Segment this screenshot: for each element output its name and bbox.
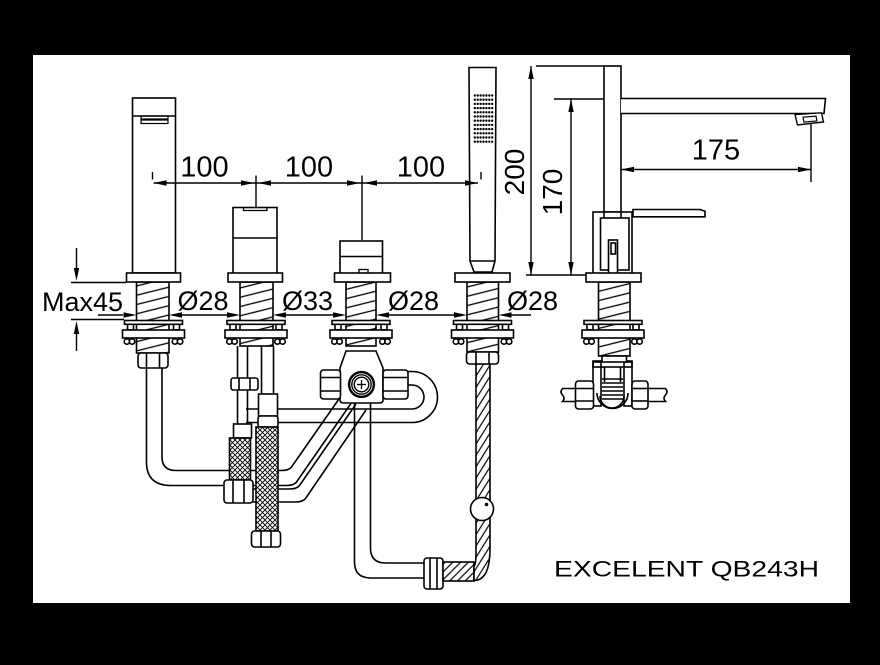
- svg-text:200: 200: [499, 149, 530, 196]
- svg-text:170: 170: [537, 169, 568, 216]
- svg-text:EXCELENT QB243H: EXCELENT QB243H: [554, 557, 819, 582]
- svg-text:175: 175: [692, 135, 740, 167]
- svg-text:100: 100: [285, 152, 333, 184]
- svg-text:Ø28: Ø28: [388, 286, 439, 316]
- svg-text:100: 100: [397, 152, 445, 184]
- svg-text:Max45: Max45: [42, 287, 123, 317]
- svg-text:Ø33: Ø33: [282, 286, 333, 316]
- svg-text:Ø28: Ø28: [178, 286, 229, 316]
- svg-text:Ø28: Ø28: [507, 286, 558, 316]
- svg-text:100: 100: [180, 152, 228, 184]
